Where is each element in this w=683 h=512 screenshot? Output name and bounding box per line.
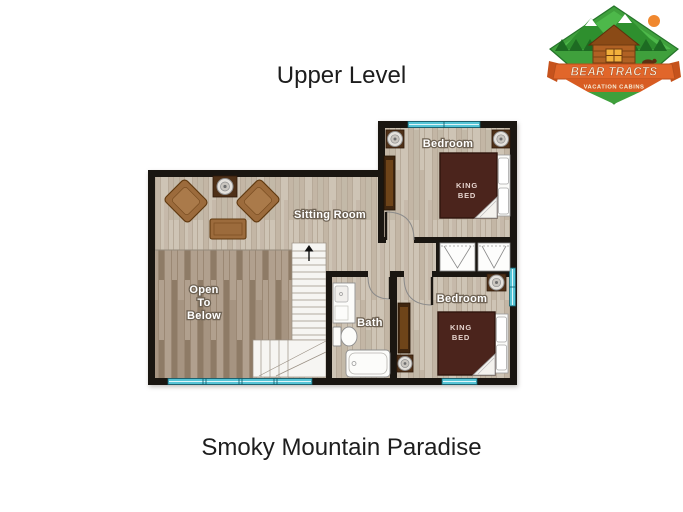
room-label: Sitting Room [294,209,366,221]
bear-head [652,59,656,63]
king-bed: KING BED [438,312,508,375]
room-label: Bedroom [437,293,487,305]
lamp-icon [398,357,412,371]
closet [440,243,475,271]
floor-plan-page: Upper Level BEAR TRACTS VACATION CABINS [0,0,683,512]
floor-plan: KING BED Bedroom KIN [140,100,530,390]
dresser-inner [386,160,393,206]
bed-label: BED [458,191,476,200]
lamp-icon [217,179,233,195]
room-label: To [197,297,210,309]
sink-vanity [333,283,355,323]
lamp-icon [494,132,509,147]
coffee-table [210,219,246,239]
window [442,379,477,385]
window [168,379,312,385]
sun-icon [648,15,660,27]
closet [478,243,510,271]
dresser-inner [400,307,408,349]
window [408,122,480,128]
property-name-caption: Smoky Mountain Paradise [0,434,683,462]
bed-label: BED [452,333,470,342]
logo-bottom-point [588,92,640,104]
room-label: Below [187,310,221,322]
brand-logo: BEAR TRACTS VACATION CABINS [547,5,681,107]
stair-turn [253,340,326,377]
logo-tagline-text: VACATION CABINS [584,85,645,91]
toilet [333,327,357,346]
logo-brand-text: BEAR TRACTS [571,67,658,79]
room-label: Bedroom [423,138,473,150]
king-bed: KING BED [440,153,510,218]
lamp-icon [388,132,403,147]
room-label: Open [189,284,218,296]
bathtub [346,350,390,377]
bed-label: KING [450,323,472,332]
closets [440,243,510,271]
room-label: Bath [357,317,383,329]
bed-label: KING [456,181,478,190]
window [510,268,516,306]
lamp-icon [489,275,504,290]
